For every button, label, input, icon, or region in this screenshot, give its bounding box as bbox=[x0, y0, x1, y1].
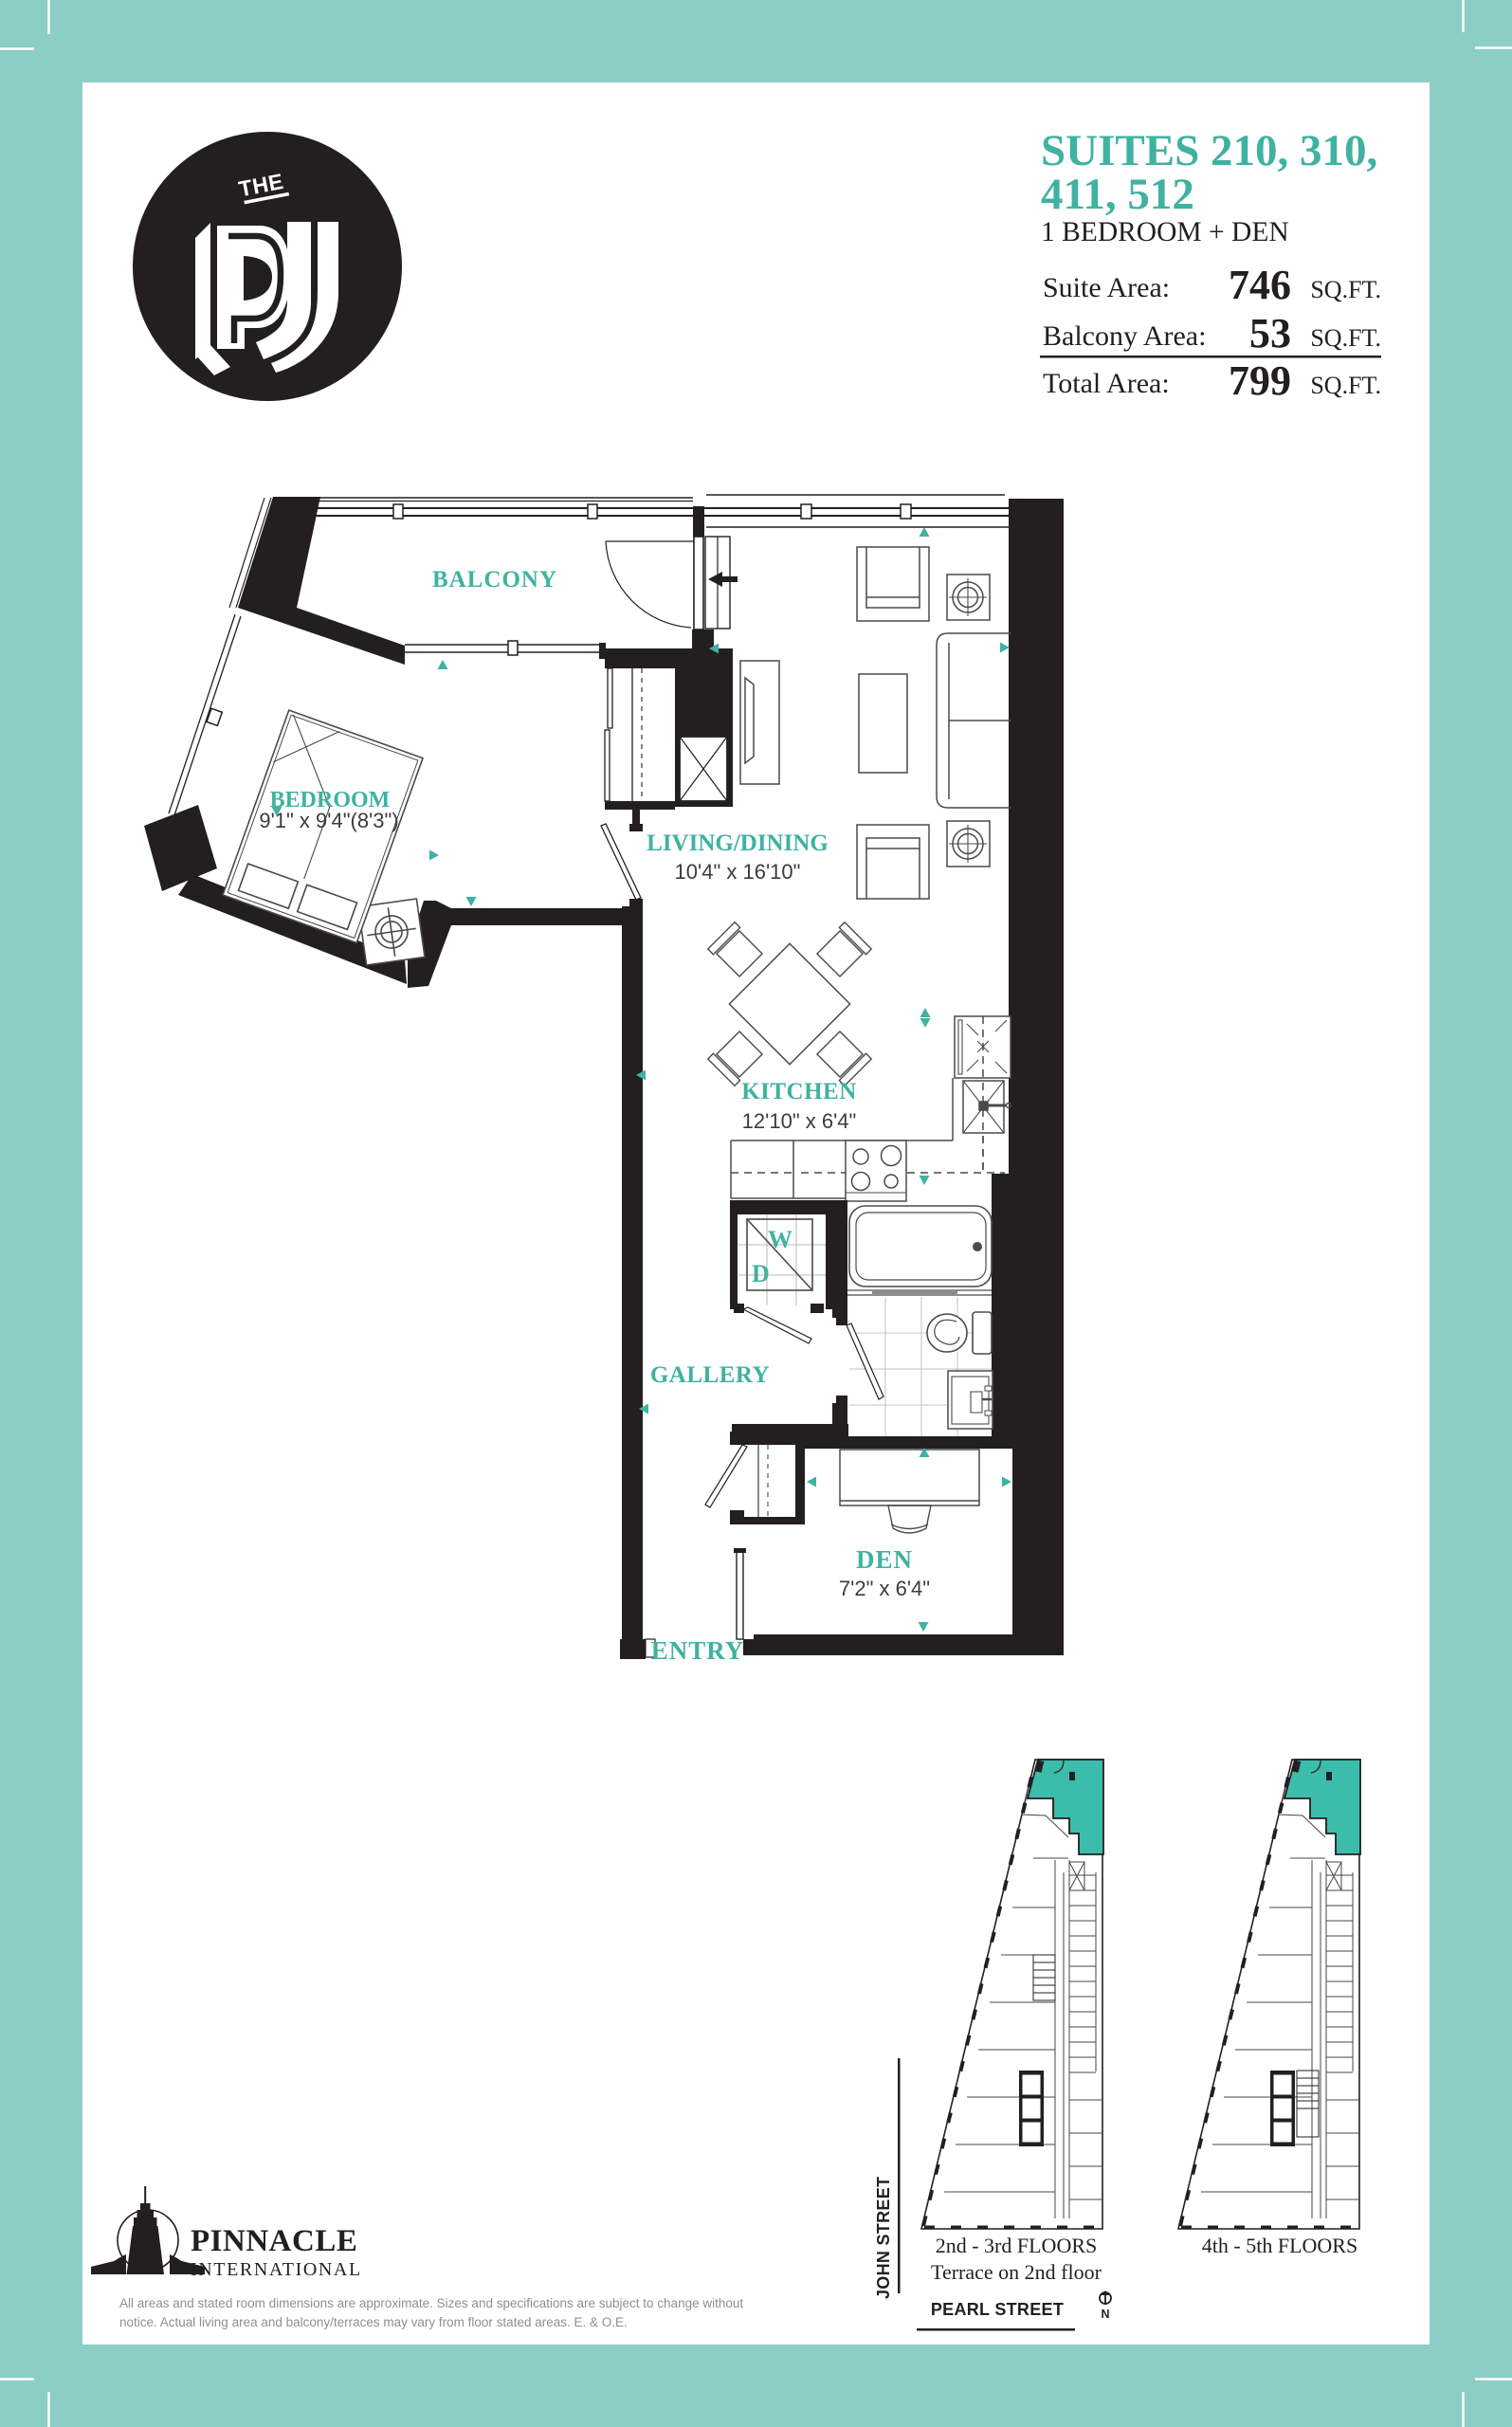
svg-text:SQ.FT.: SQ.FT. bbox=[1310, 372, 1381, 399]
svg-text:ENTRY: ENTRY bbox=[651, 1636, 745, 1665]
svg-text:PEARL STREET: PEARL STREET bbox=[931, 2300, 1064, 2319]
svg-text:PINNACLE: PINNACLE bbox=[191, 2224, 357, 2258]
svg-text:SUITES 210, 310,: SUITES 210, 310, bbox=[1041, 126, 1377, 175]
svg-text:53: 53 bbox=[1249, 310, 1291, 356]
svg-text:799: 799 bbox=[1229, 357, 1291, 404]
svg-text:7'2" x 6'4": 7'2" x 6'4" bbox=[839, 1577, 930, 1600]
svg-text:BALCONY: BALCONY bbox=[432, 567, 557, 593]
svg-text:D: D bbox=[752, 1260, 770, 1287]
svg-text:2nd - 3rd FLOORS: 2nd - 3rd FLOORS bbox=[936, 2234, 1098, 2257]
svg-text:W: W bbox=[768, 1226, 792, 1253]
svg-text:Terrace on 2nd floor: Terrace on 2nd floor bbox=[931, 2260, 1102, 2284]
svg-text:SQ.FT.: SQ.FT. bbox=[1310, 324, 1381, 352]
svg-text:746: 746 bbox=[1229, 262, 1291, 308]
svg-text:Balcony Area:: Balcony Area: bbox=[1043, 320, 1206, 352]
svg-text:Suite Area:: Suite Area: bbox=[1043, 272, 1170, 303]
svg-text:12'10" x 6'4": 12'10" x 6'4" bbox=[742, 1109, 857, 1133]
svg-text:notice. Actual living area and: notice. Actual living area and balcony/t… bbox=[119, 2315, 628, 2329]
svg-text:4th - 5th FLOORS: 4th - 5th FLOORS bbox=[1202, 2234, 1357, 2257]
svg-text:SQ.FT.: SQ.FT. bbox=[1310, 276, 1381, 303]
svg-text:10'4" x 16'10": 10'4" x 16'10" bbox=[675, 860, 801, 884]
svg-text:GALLERY: GALLERY bbox=[650, 1362, 770, 1388]
svg-text:Total Area:: Total Area: bbox=[1043, 368, 1170, 399]
svg-text:LIVING/DINING: LIVING/DINING bbox=[647, 830, 829, 856]
svg-text:N: N bbox=[1101, 2308, 1109, 2321]
svg-text:411, 512: 411, 512 bbox=[1041, 170, 1194, 219]
svg-text:1 BEDROOM + DEN: 1 BEDROOM + DEN bbox=[1041, 217, 1289, 247]
svg-text:INTERNATIONAL: INTERNATIONAL bbox=[191, 2259, 362, 2280]
svg-text:KITCHEN: KITCHEN bbox=[741, 1079, 857, 1104]
svg-text:JOHN STREET: JOHN STREET bbox=[874, 2177, 893, 2299]
svg-text:All areas and stated room dime: All areas and stated room dimensions are… bbox=[119, 2296, 743, 2310]
svg-text:DEN: DEN bbox=[856, 1545, 913, 1574]
svg-text:9'1" x 9'4"(8'3"): 9'1" x 9'4"(8'3") bbox=[259, 809, 398, 832]
